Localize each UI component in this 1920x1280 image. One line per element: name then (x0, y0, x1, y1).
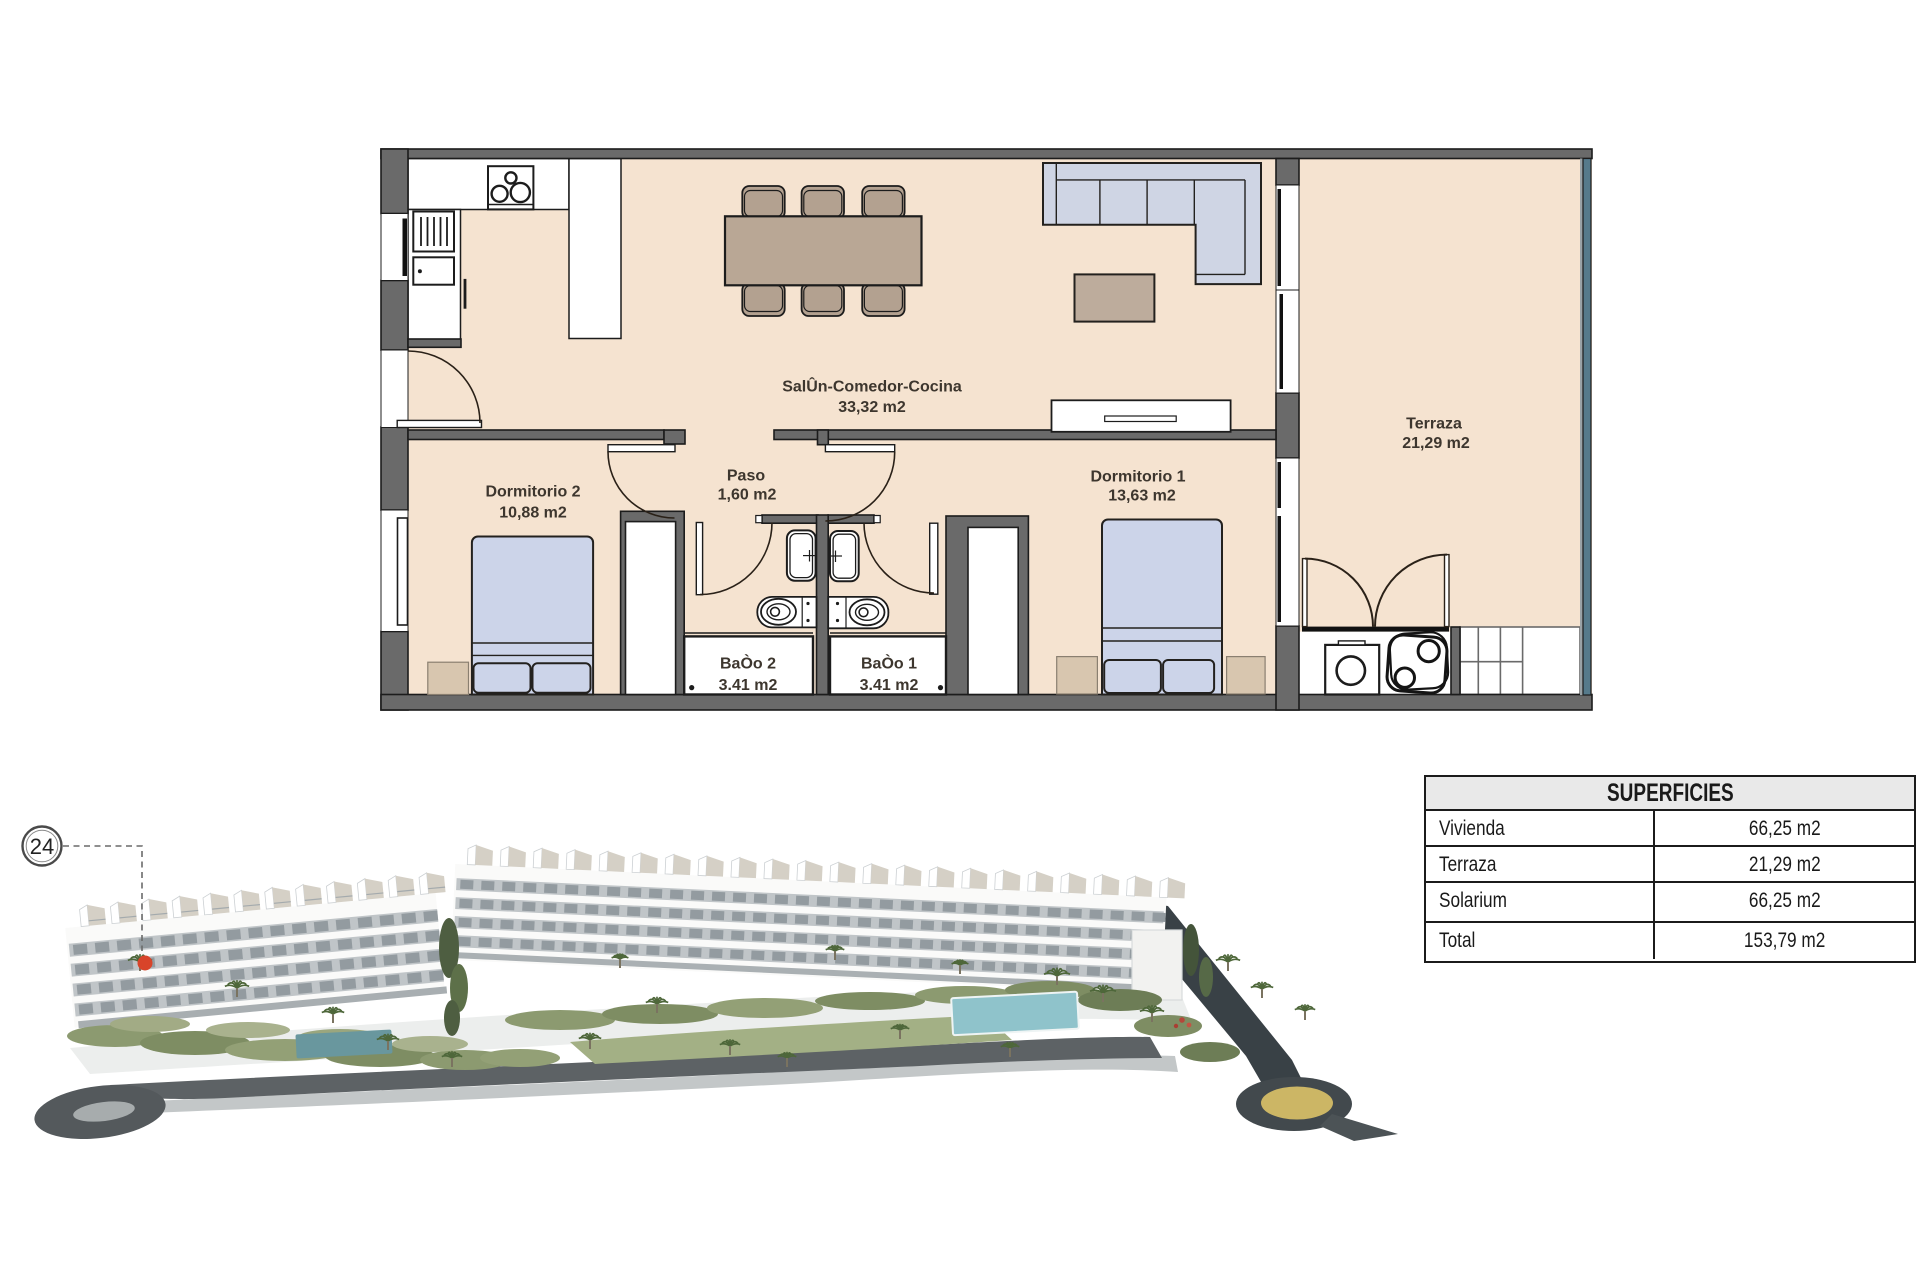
svg-text:21,29 m2: 21,29 m2 (1402, 435, 1470, 452)
svg-text:BaÒo 2: BaÒo 2 (720, 654, 776, 673)
svg-text:Paso: Paso (727, 468, 765, 485)
svg-text:3.41 m2: 3.41 m2 (719, 677, 778, 694)
svg-text:1,60 m2: 1,60 m2 (718, 487, 777, 504)
svg-text:Dormitorio 1: Dormitorio 1 (1090, 469, 1185, 486)
svg-text:BaÒo 1: BaÒo 1 (861, 654, 917, 673)
svg-text:24: 24 (30, 834, 54, 859)
svg-text:33,32 m2: 33,32 m2 (838, 399, 906, 416)
svg-text:13,63 m2: 13,63 m2 (1108, 488, 1176, 505)
svg-text:SalÛn-Comedor-Cocina: SalÛn-Comedor-Cocina (782, 377, 962, 396)
svg-text:Terraza: Terraza (1406, 416, 1462, 433)
svg-text:3.41 m2: 3.41 m2 (860, 677, 919, 694)
svg-text:Dormitorio 2: Dormitorio 2 (485, 484, 580, 501)
svg-text:10,88 m2: 10,88 m2 (499, 505, 567, 522)
